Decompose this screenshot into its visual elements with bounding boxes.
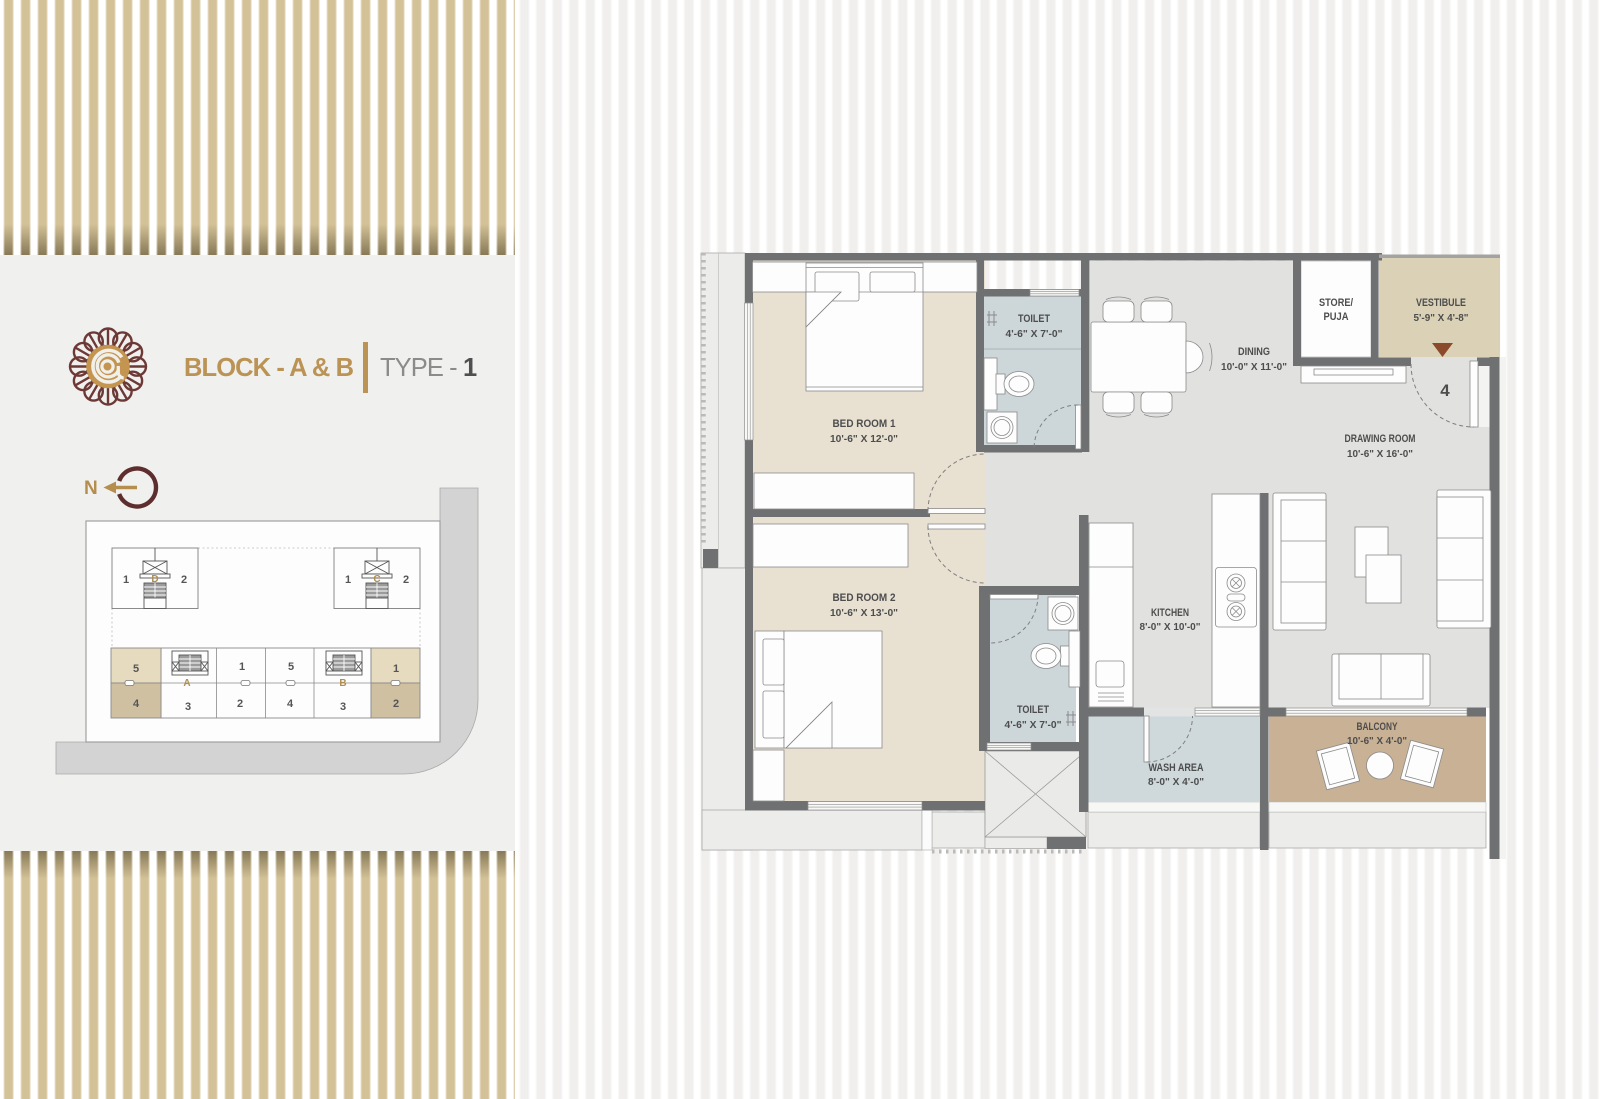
svg-text:BALCONY: BALCONY (1357, 721, 1399, 733)
svg-text:BED ROOM 1: BED ROOM 1 (833, 418, 896, 430)
svg-text:2: 2 (403, 574, 409, 586)
svg-text:A: A (183, 678, 190, 689)
svg-text:BED ROOM 2: BED ROOM 2 (833, 592, 896, 604)
svg-text:1: 1 (123, 574, 129, 586)
svg-text:WASH AREA: WASH AREA (1149, 762, 1204, 774)
svg-text:D: D (151, 574, 158, 585)
svg-text:TOILET: TOILET (1017, 704, 1049, 716)
svg-text:STORE/: STORE/ (1319, 297, 1353, 309)
svg-text:5: 5 (288, 661, 294, 673)
svg-text:8'-0" X 10'-0": 8'-0" X 10'-0" (1140, 622, 1201, 633)
svg-text:1: 1 (239, 661, 245, 673)
svg-text:5'-9" X 4'-8": 5'-9" X 4'-8" (1414, 313, 1469, 324)
svg-text:DINING: DINING (1238, 346, 1270, 358)
svg-text:10'-6" X 16'-0": 10'-6" X 16'-0" (1347, 449, 1413, 460)
svg-text:3: 3 (185, 701, 191, 713)
svg-text:5: 5 (133, 663, 139, 675)
svg-text:8'-0" X 4'-0": 8'-0" X 4'-0" (1148, 777, 1204, 788)
svg-text:4: 4 (133, 698, 140, 710)
svg-text:B: B (339, 678, 346, 689)
svg-text:10'-6" X 4'-0": 10'-6" X 4'-0" (1347, 736, 1407, 747)
svg-text:10'-6" X 12'-0": 10'-6" X 12'-0" (830, 434, 898, 445)
svg-text:2: 2 (237, 698, 243, 710)
svg-text:DRAWING ROOM: DRAWING ROOM (1345, 433, 1416, 445)
svg-text:KITCHEN: KITCHEN (1151, 607, 1189, 619)
svg-text:2: 2 (393, 698, 399, 710)
svg-text:1: 1 (345, 574, 351, 586)
svg-text:PUJA: PUJA (1324, 311, 1349, 323)
svg-text:VESTIBULE: VESTIBULE (1416, 297, 1466, 309)
svg-text:10'-0" X 11'-0": 10'-0" X 11'-0" (1221, 362, 1287, 373)
svg-text:TOILET: TOILET (1018, 313, 1050, 325)
svg-text:4: 4 (1440, 381, 1450, 400)
svg-text:C: C (373, 574, 380, 585)
svg-text:2: 2 (181, 574, 187, 586)
svg-text:1: 1 (393, 663, 399, 675)
svg-text:10'-6" X 13'-0": 10'-6" X 13'-0" (830, 608, 898, 619)
svg-text:4'-6" X 7'-0": 4'-6" X 7'-0" (1006, 329, 1063, 340)
svg-text:4: 4 (287, 698, 294, 710)
svg-text:3: 3 (340, 701, 346, 713)
svg-text:4'-6" X 7'-0": 4'-6" X 7'-0" (1005, 720, 1062, 731)
